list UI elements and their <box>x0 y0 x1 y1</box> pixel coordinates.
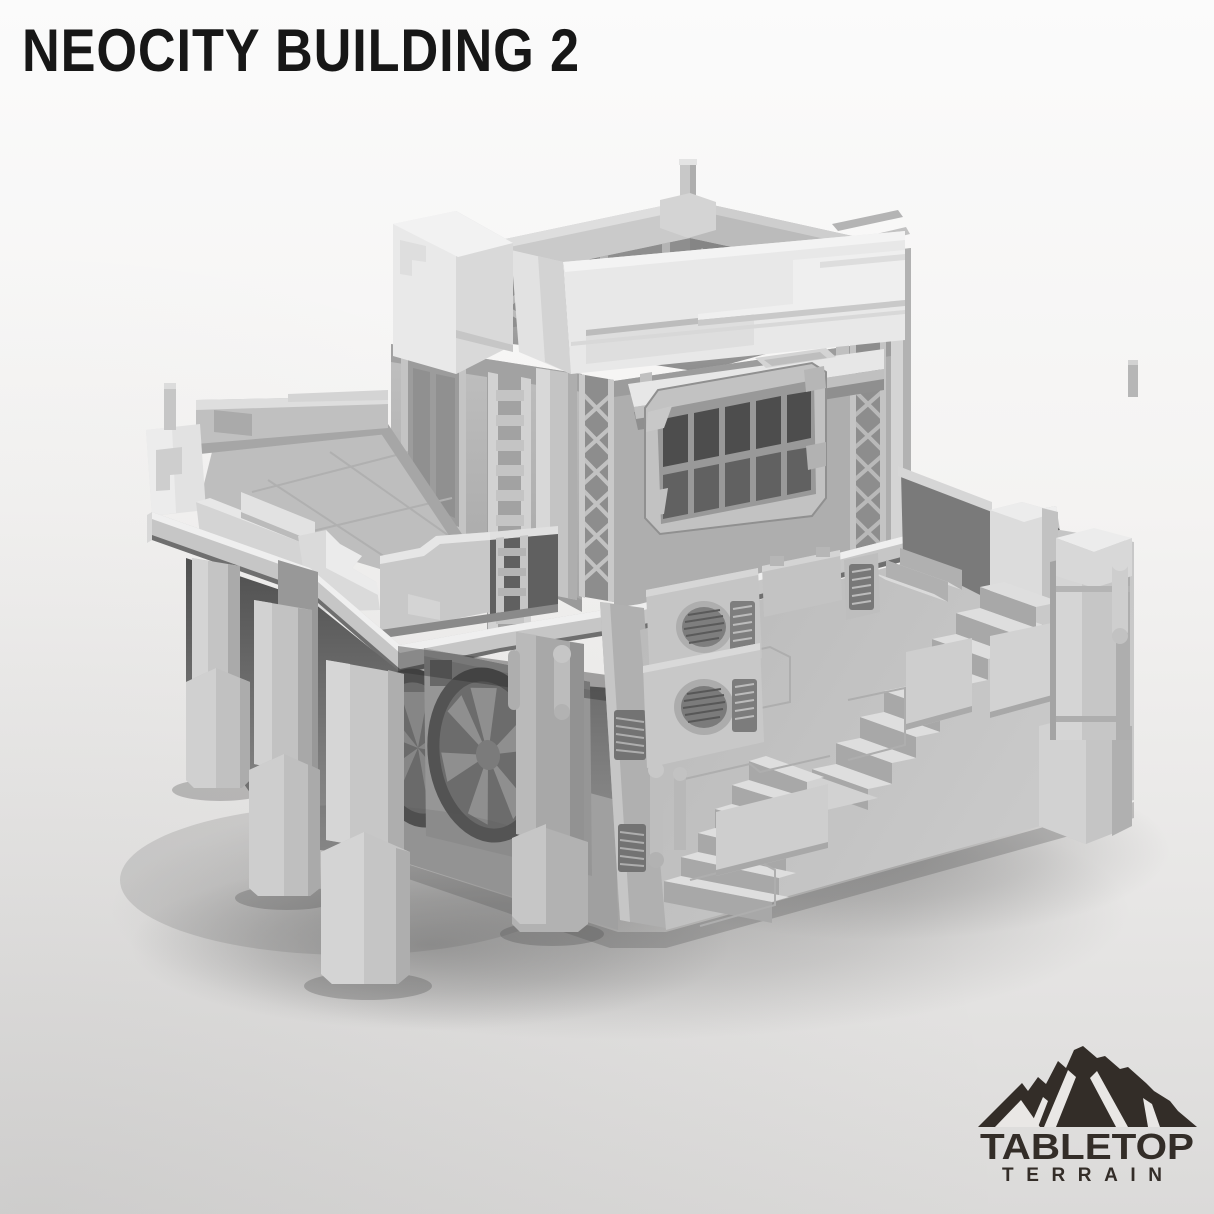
svg-text:TABLETOP: TABLETOP <box>980 1126 1194 1167</box>
svg-text:NEOCITY BUILDING 2: NEOCITY BUILDING 2 <box>22 17 580 84</box>
